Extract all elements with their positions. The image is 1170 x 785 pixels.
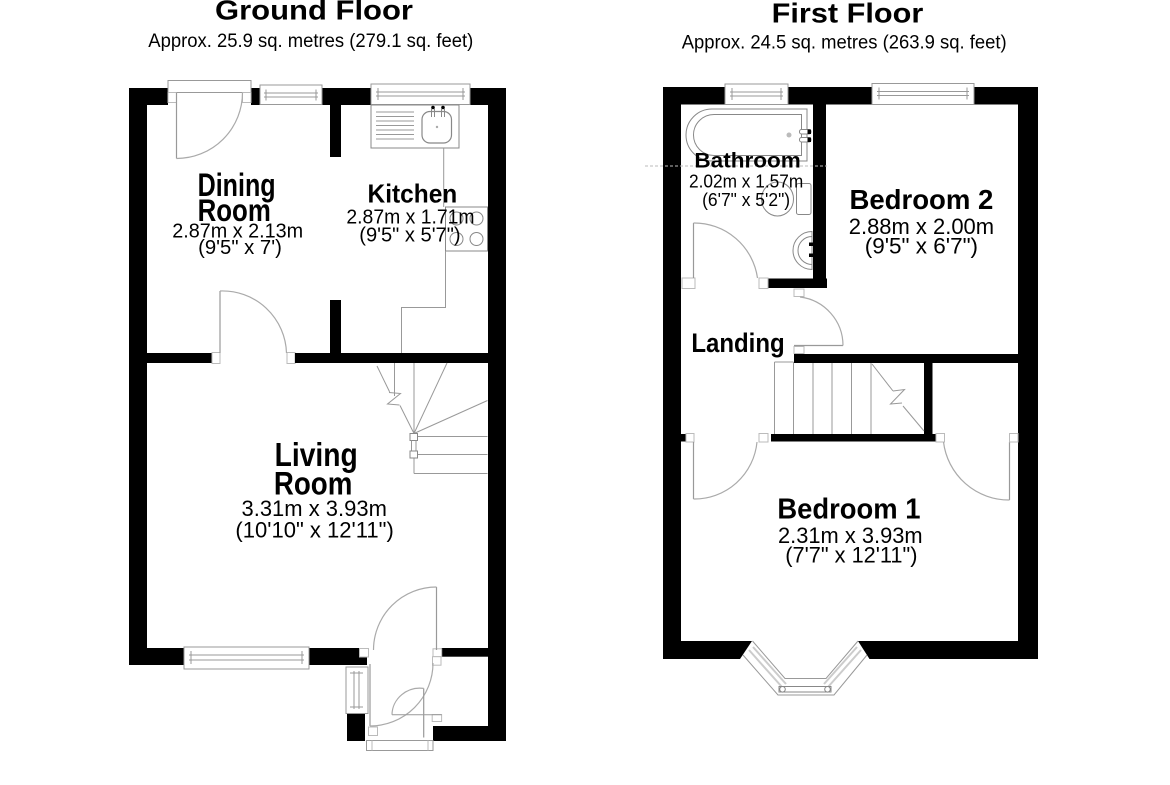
svg-text:First Floor: First Floor <box>772 0 924 29</box>
svg-text:(6'7" x 5'2"): (6'7" x 5'2") <box>702 189 790 210</box>
svg-text:Approx. 24.5 sq. metres (263.9: Approx. 24.5 sq. metres (263.9 sq. feet) <box>682 32 1007 53</box>
svg-text:Landing: Landing <box>691 328 784 358</box>
svg-text:Kitchen: Kitchen <box>368 179 458 209</box>
svg-text:Approx. 25.9 sq. metres (279.1: Approx. 25.9 sq. metres (279.1 sq. feet) <box>148 31 473 52</box>
svg-text:(7'7" x 12'11"): (7'7" x 12'11") <box>785 543 917 568</box>
svg-text:(9'5" x 5'7"): (9'5" x 5'7") <box>359 225 460 247</box>
svg-text:Ground Floor: Ground Floor <box>215 0 413 26</box>
svg-text:(9'5" x 6'7"): (9'5" x 6'7") <box>865 233 978 258</box>
svg-text:Bathroom: Bathroom <box>694 148 800 173</box>
svg-text:Bedroom 1: Bedroom 1 <box>777 492 920 524</box>
svg-text:(9'5" x 7'): (9'5" x 7') <box>198 237 282 259</box>
svg-text:Bedroom 2: Bedroom 2 <box>849 184 993 215</box>
svg-text:(10'10" x 12'11"): (10'10" x 12'11") <box>235 518 393 543</box>
